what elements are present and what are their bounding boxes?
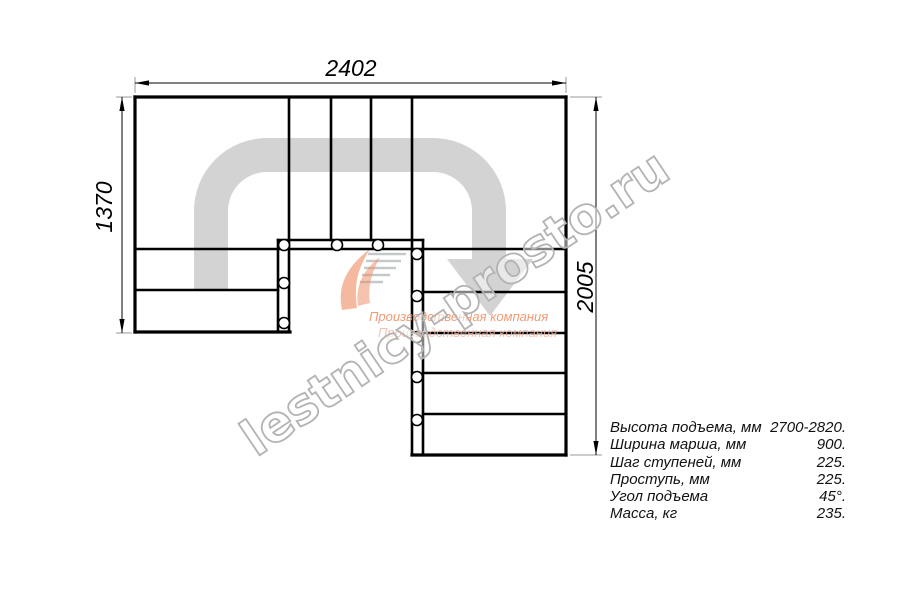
spec-label: Угол подъема <box>610 488 708 505</box>
dim-arrow-icon <box>552 80 566 85</box>
spec-label: Масса, кг <box>610 505 677 522</box>
spec-row: Шаг ступеней, мм 225. <box>610 454 846 471</box>
dimension-width-top: 2402 <box>135 55 566 93</box>
spec-row: Масса, кг 235. <box>610 505 846 522</box>
baluster-circle <box>279 278 290 289</box>
spec-row: Проступь, мм 225. <box>610 471 846 488</box>
dimension-height-right-label: 2005 <box>572 261 598 313</box>
spec-value: 225. <box>817 454 846 471</box>
baluster-circle <box>412 249 423 260</box>
dim-arrow-icon <box>119 97 124 111</box>
dim-arrow-icon <box>593 441 598 455</box>
baluster-circle <box>279 240 290 251</box>
dimension-height-right: 2005 <box>570 97 602 455</box>
spec-value: 235. <box>817 505 846 522</box>
spec-row: Ширина марша, мм 900. <box>610 436 846 453</box>
baluster-circle <box>373 240 384 251</box>
dimension-height-left: 1370 <box>91 97 132 333</box>
baluster-circle <box>332 240 343 251</box>
dimension-height-left-label: 1370 <box>91 181 117 232</box>
logo-watermark <box>341 249 406 310</box>
spec-label: Шаг ступеней, мм <box>610 454 741 471</box>
dimension-width-label: 2402 <box>324 55 376 81</box>
spec-value: 2700-2820. <box>770 419 846 436</box>
spec-label: Высота подъема, мм <box>610 419 762 436</box>
dim-arrow-icon <box>135 80 149 85</box>
spec-value: 45°. <box>819 488 846 505</box>
dim-arrow-icon <box>593 97 598 111</box>
specs-table: Высота подъема, мм 2700-2820. Ширина мар… <box>610 419 846 523</box>
baluster-circle <box>412 415 423 426</box>
dim-arrow-icon <box>119 319 124 333</box>
baluster-circle <box>412 372 423 383</box>
spec-row: Высота подъема, мм 2700-2820. <box>610 419 846 436</box>
spec-value: 900. <box>817 436 846 453</box>
spec-label: Ширина марша, мм <box>610 436 746 453</box>
spec-row: Угол подъема 45°. <box>610 488 846 505</box>
spec-label: Проступь, мм <box>610 471 710 488</box>
baluster-circle <box>279 318 290 329</box>
stair-plan-page: 2402 1370 2005 Производственная компания… <box>0 0 900 600</box>
spec-value: 225. <box>817 471 846 488</box>
